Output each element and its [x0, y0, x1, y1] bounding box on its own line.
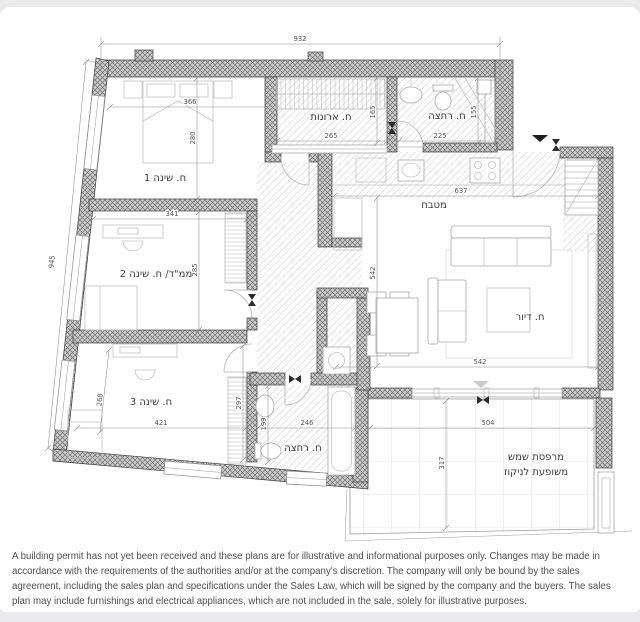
wardrobe: [225, 213, 246, 283]
dimension-value: 341: [166, 210, 179, 218]
dimension-value: 265: [325, 132, 338, 140]
door-bowtie-icon: [248, 294, 256, 306]
room-label-living-room: ח. דיור: [516, 312, 545, 323]
bathtub: [328, 387, 355, 475]
room-label-kitchen: מטבח: [421, 200, 447, 211]
tv-console: [588, 234, 596, 368]
door-swing: [224, 344, 252, 372]
dimension-value: 165: [369, 106, 377, 119]
stairwell: [565, 160, 598, 215]
dimension-value: 155: [470, 106, 478, 119]
room-label-balcony-line2: משופעת לניקוז: [504, 467, 568, 478]
bed-double: [124, 81, 232, 163]
dimension-value: 421: [155, 419, 168, 427]
closet-sliding-doors: [272, 145, 387, 153]
dimension-line: [100, 350, 109, 432]
dimension-value: 542: [474, 358, 487, 366]
level-change-arrow-icon: [473, 381, 489, 388]
room-label-closet-room: ח. ארונות: [310, 112, 351, 123]
dimension-value: 297: [235, 397, 243, 410]
dimension-value: 366: [184, 98, 197, 106]
room-label-bedroom-3: ח. שינה 3: [130, 397, 172, 408]
coffee-table: [487, 288, 530, 332]
dimension-value: 246: [301, 419, 314, 427]
balcony-sliding-door: [412, 388, 562, 398]
dimension-value: 225: [434, 132, 447, 140]
dimension-value: 542: [369, 267, 377, 280]
drain-pipe: [598, 472, 614, 533]
room-label-balcony-line1: מרפסת שמש: [508, 452, 564, 463]
dimension-value: 945: [47, 255, 56, 269]
door-bowtie-icon: [552, 139, 560, 151]
dimension-value: 280: [189, 132, 197, 145]
room-label-bedroom-1: ח. שינה 1: [144, 173, 186, 184]
room-label-safe-room-bedroom-2: ממ"ד/ ח. שינה 2: [120, 269, 193, 280]
stove: [470, 158, 500, 183]
door-bowtie-icon: [289, 375, 301, 383]
dimension-value: 268: [95, 393, 104, 407]
dimension-value: 504: [482, 419, 495, 427]
door-swing: [224, 290, 252, 318]
living-furniture: [367, 226, 596, 368]
dining-set: [367, 292, 418, 356]
dimension-value: 637: [455, 187, 468, 195]
room-label-bathroom-1: ח. רחצה: [428, 111, 466, 122]
dimension-value: 932: [294, 35, 307, 43]
entrance-arrow-icon: [532, 135, 548, 142]
wardrobe: [228, 377, 246, 464]
kitchen-sink: [398, 160, 424, 181]
floor-plan-drawing: 9329453662803412852684212971992462651652…: [0, 0, 640, 622]
sofa: [451, 226, 551, 266]
washing-machine: [323, 347, 350, 374]
wardrobe: [276, 79, 385, 109]
room-label-bathroom-2: ח. רחצה: [284, 443, 322, 454]
dimension-value: 317: [438, 457, 446, 470]
dimension-value: 199: [260, 418, 268, 431]
window: [286, 471, 327, 486]
legal-disclaimer: A building permit has not yet been recei…: [12, 549, 630, 609]
window: [84, 95, 105, 170]
loveseat: [428, 278, 466, 344]
